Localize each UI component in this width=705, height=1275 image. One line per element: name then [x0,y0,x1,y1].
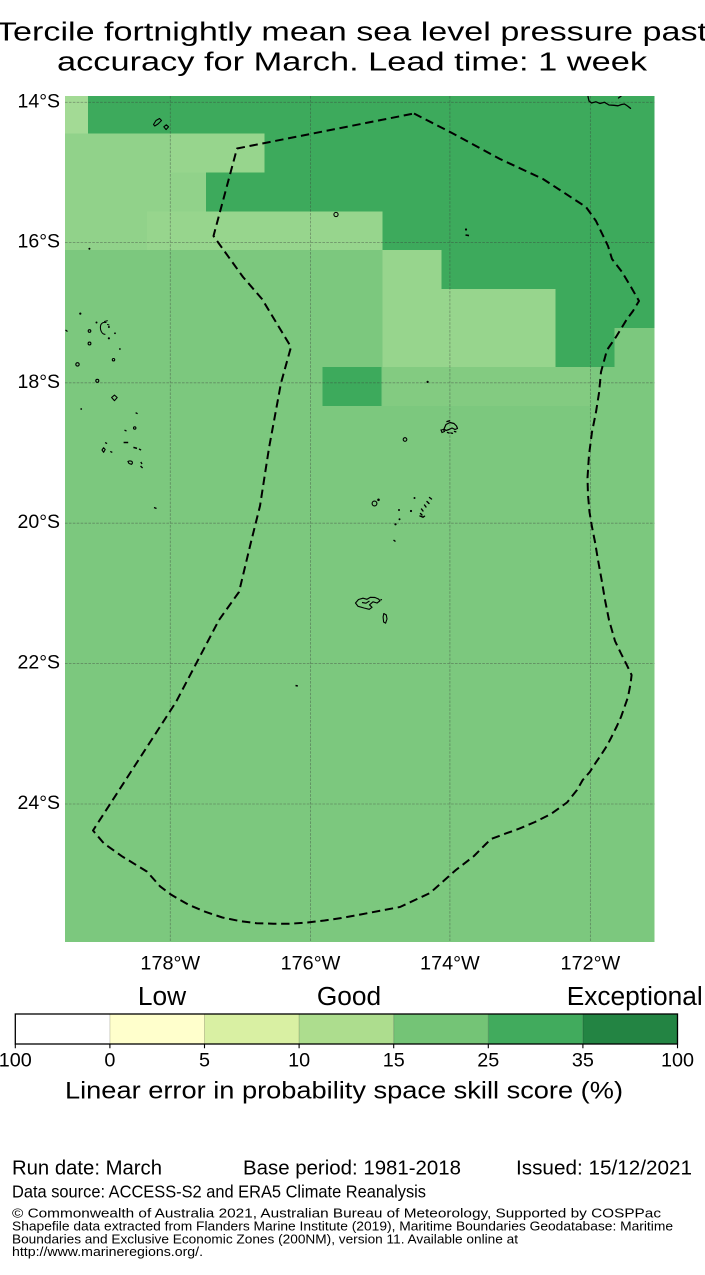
svg-text:24°S: 24°S [18,792,61,814]
svg-text:http://www.marineregions.org/.: http://www.marineregions.org/. [12,1244,203,1259]
svg-text:0: 0 [104,1049,115,1071]
svg-text:5: 5 [199,1049,210,1071]
svg-text:18°S: 18°S [18,371,61,393]
svg-text:Low: Low [138,981,187,1011]
svg-text:Data source: ACCESS-S2 and ERA: Data source: ACCESS-S2 and ERA5 Climate … [12,1182,426,1202]
svg-text:accuracy for March. Lead time:: accuracy for March. Lead time: 1 week [57,46,648,76]
svg-text:178°W: 178°W [140,953,200,975]
svg-text:172°W: 172°W [561,953,621,975]
svg-text:174°W: 174°W [420,953,480,975]
svg-text:100: 100 [661,1049,694,1071]
svg-text:25: 25 [477,1049,499,1071]
svg-text:Base period: 1981-2018: Base period: 1981-2018 [243,1156,461,1179]
svg-text:Good: Good [317,981,381,1011]
svg-text:Tercile fortnightly mean sea l: Tercile fortnightly mean sea level press… [0,17,705,47]
svg-text:Issued: 15/12/2021: Issued: 15/12/2021 [516,1156,692,1179]
svg-text:22°S: 22°S [18,652,61,674]
svg-text:15: 15 [383,1049,405,1071]
svg-text:16°S: 16°S [18,230,61,252]
svg-text:10: 10 [288,1049,310,1071]
svg-text:176°W: 176°W [281,953,341,975]
svg-text:100: 100 [0,1049,32,1071]
svg-text:Exceptional: Exceptional [567,981,703,1011]
svg-text:Run date: March: Run date: March [12,1156,162,1179]
svg-text:14°S: 14°S [18,90,61,112]
svg-text:35: 35 [572,1049,594,1071]
svg-text:20°S: 20°S [18,511,61,533]
svg-text:Linear error in probability sp: Linear error in probability space skill … [65,1078,623,1105]
